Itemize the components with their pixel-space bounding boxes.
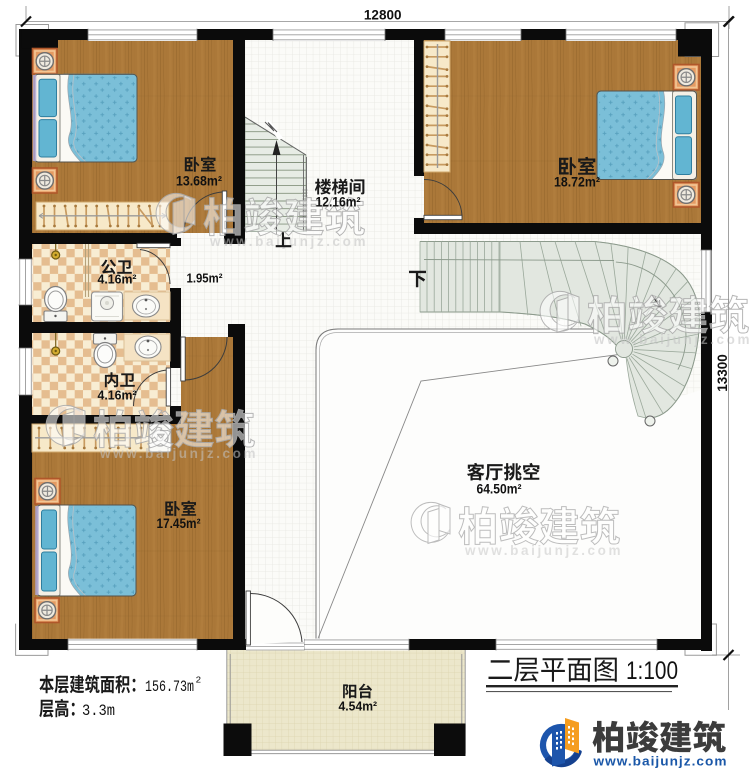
- svg-text:4.16m²: 4.16m²: [98, 271, 137, 286]
- svg-text:13.68m²: 13.68m²: [176, 174, 222, 189]
- svg-text:18.72m²: 18.72m²: [554, 175, 600, 190]
- svg-text:1.95m²: 1.95m²: [187, 271, 224, 286]
- svg-text:3.3m: 3.3m: [82, 702, 115, 720]
- svg-text:12.16m²: 12.16m²: [316, 195, 361, 210]
- svg-text:13300: 13300: [715, 354, 730, 392]
- svg-text:156.73m: 156.73m: [145, 678, 194, 696]
- svg-text:17.45m²: 17.45m²: [157, 516, 201, 531]
- svg-text:4.54m²: 4.54m²: [339, 699, 378, 714]
- svg-text:2: 2: [196, 675, 202, 686]
- svg-text:64.50m²: 64.50m²: [477, 481, 522, 497]
- svg-text:4.16m²: 4.16m²: [98, 387, 137, 402]
- svg-text:www.baijunjz.com: www.baijunjz.com: [592, 754, 727, 769]
- svg-text:12800: 12800: [364, 8, 402, 23]
- svg-text:1:100: 1:100: [626, 657, 678, 685]
